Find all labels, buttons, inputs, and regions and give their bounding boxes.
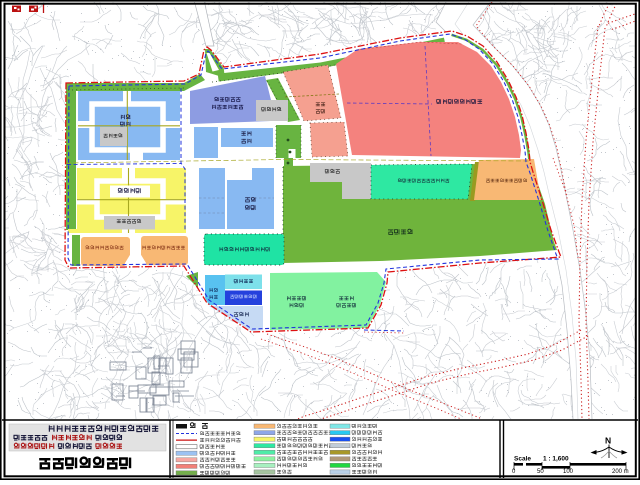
- svg-text:200 m: 200 m: [612, 469, 629, 475]
- svg-text:1 : 1,600: 1 : 1,600: [543, 456, 569, 463]
- svg-text:100: 100: [563, 469, 574, 475]
- svg-text:Scale: Scale: [514, 456, 531, 463]
- svg-text:N: N: [605, 436, 611, 446]
- svg-text:50: 50: [537, 469, 544, 475]
